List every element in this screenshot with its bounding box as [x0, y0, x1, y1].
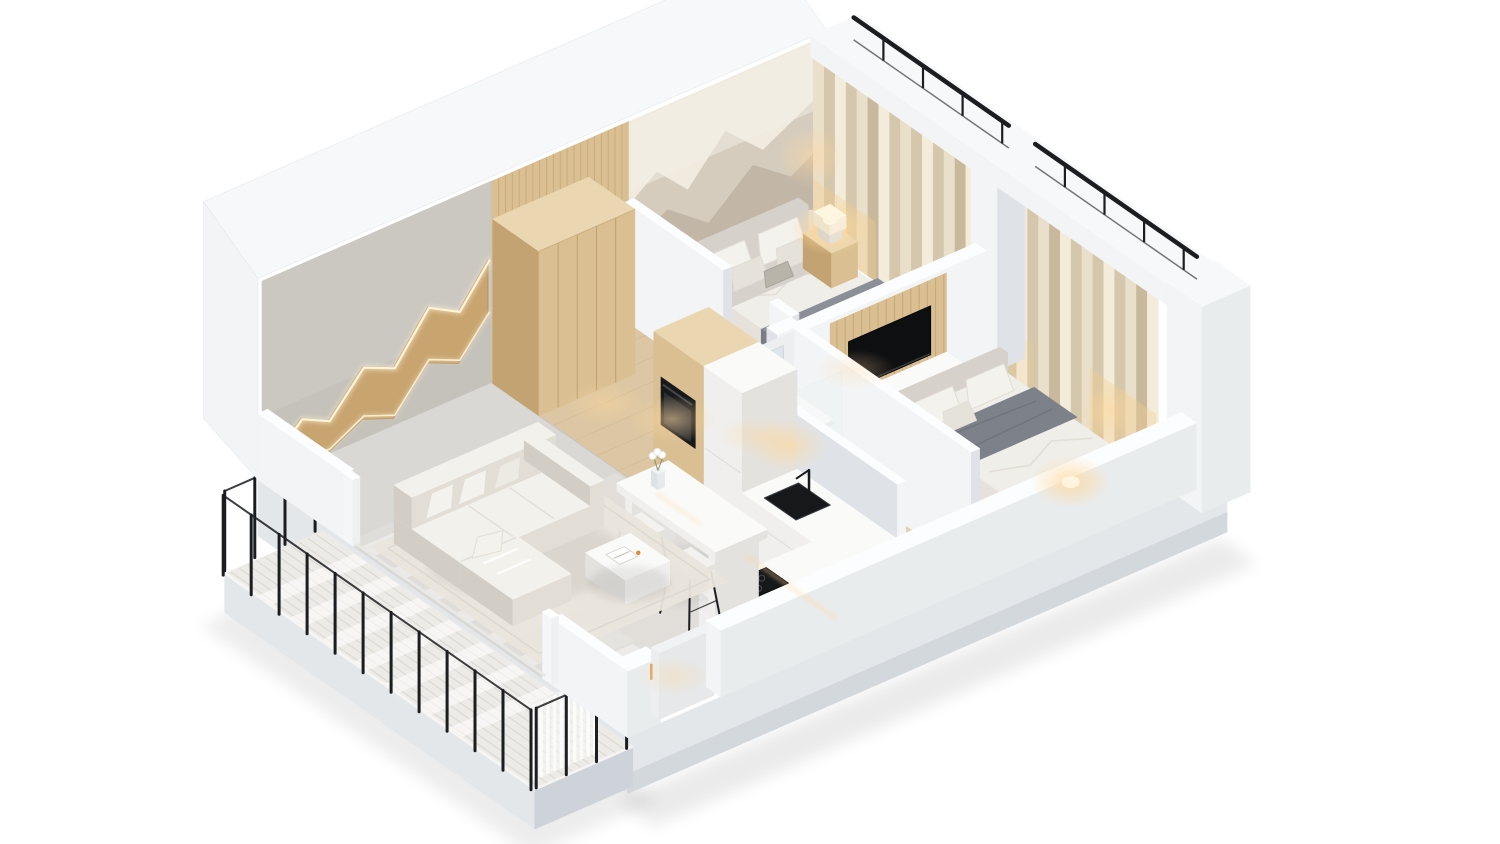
- floor-plan-render: [0, 0, 1500, 844]
- bedroom1-table-lamp: [790, 203, 870, 255]
- isometric-apartment-svg: [0, 0, 1500, 844]
- hallway-wardrobe: [493, 177, 635, 416]
